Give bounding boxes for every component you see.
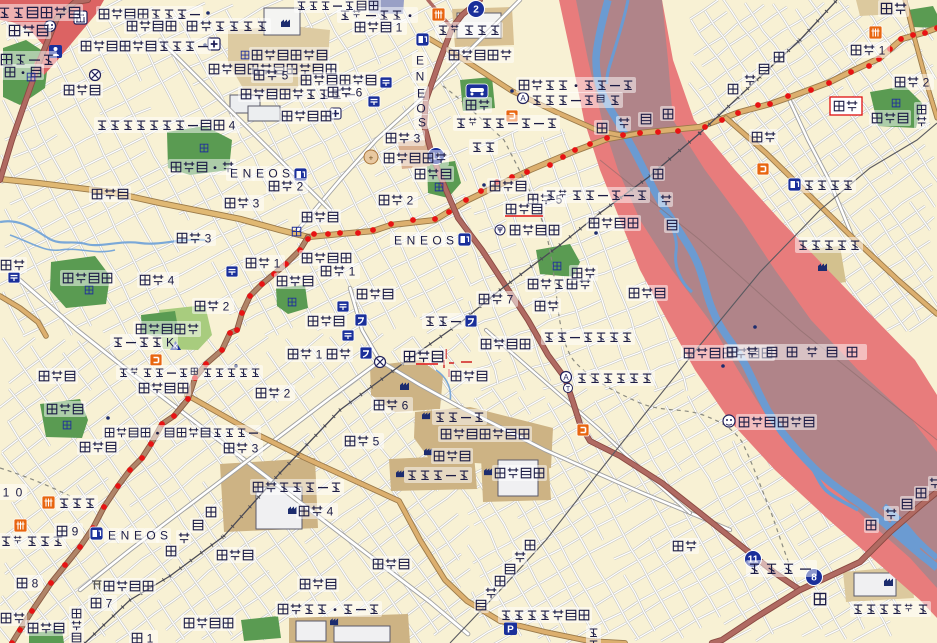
svg-text:O: O: [432, 234, 441, 248]
svg-text:1: 1: [274, 257, 281, 271]
svg-text:2: 2: [473, 5, 479, 16]
svg-text:N: N: [121, 529, 130, 543]
svg-text:E: E: [108, 529, 116, 543]
svg-text:1: 1: [147, 632, 154, 643]
svg-text:1: 1: [396, 21, 403, 35]
svg-text:E: E: [134, 529, 142, 543]
svg-text:T: T: [566, 386, 571, 393]
svg-text:E: E: [256, 167, 264, 181]
svg-text:N: N: [243, 167, 252, 181]
svg-text:4: 4: [168, 274, 175, 288]
svg-text:N: N: [407, 234, 416, 248]
svg-text:5: 5: [373, 435, 380, 449]
svg-text:E: E: [230, 167, 238, 181]
svg-text:+: +: [369, 154, 374, 163]
svg-text:N: N: [416, 70, 425, 84]
svg-text:2: 2: [223, 300, 230, 314]
svg-text:E: E: [417, 87, 425, 101]
svg-text:A: A: [520, 94, 526, 103]
svg-text:1: 1: [349, 265, 356, 279]
svg-text:E: E: [394, 234, 402, 248]
svg-text:S: S: [160, 529, 168, 543]
svg-text:O: O: [416, 102, 425, 116]
svg-text:4: 4: [327, 505, 334, 519]
svg-text:7: 7: [507, 293, 514, 307]
svg-text:3: 3: [205, 232, 212, 246]
svg-text:3: 3: [252, 442, 259, 456]
svg-text:4: 4: [229, 119, 236, 133]
svg-text:2: 2: [284, 387, 291, 401]
svg-text:8: 8: [32, 577, 39, 591]
svg-text:7: 7: [106, 597, 113, 611]
svg-text:S: S: [446, 234, 454, 248]
svg-text:3: 3: [253, 197, 260, 211]
svg-text:K: K: [166, 336, 174, 350]
svg-text:3: 3: [414, 132, 421, 146]
svg-text:S: S: [418, 116, 426, 130]
svg-text:1: 1: [316, 348, 323, 362]
svg-text:O: O: [146, 529, 155, 543]
svg-text:E: E: [420, 234, 428, 248]
svg-text:A: A: [563, 373, 569, 382]
svg-text:1: 1: [879, 44, 886, 58]
svg-text:P: P: [507, 625, 514, 636]
svg-text:E: E: [416, 54, 424, 68]
svg-text:5: 5: [282, 69, 289, 83]
svg-text:6: 6: [356, 86, 363, 100]
svg-text:2: 2: [407, 194, 414, 208]
svg-text:2: 2: [923, 76, 930, 90]
svg-text:6: 6: [402, 399, 409, 413]
svg-text:9: 9: [72, 525, 79, 539]
svg-text:0: 0: [16, 486, 23, 500]
svg-text:2: 2: [297, 180, 304, 194]
svg-text:1: 1: [3, 486, 10, 500]
